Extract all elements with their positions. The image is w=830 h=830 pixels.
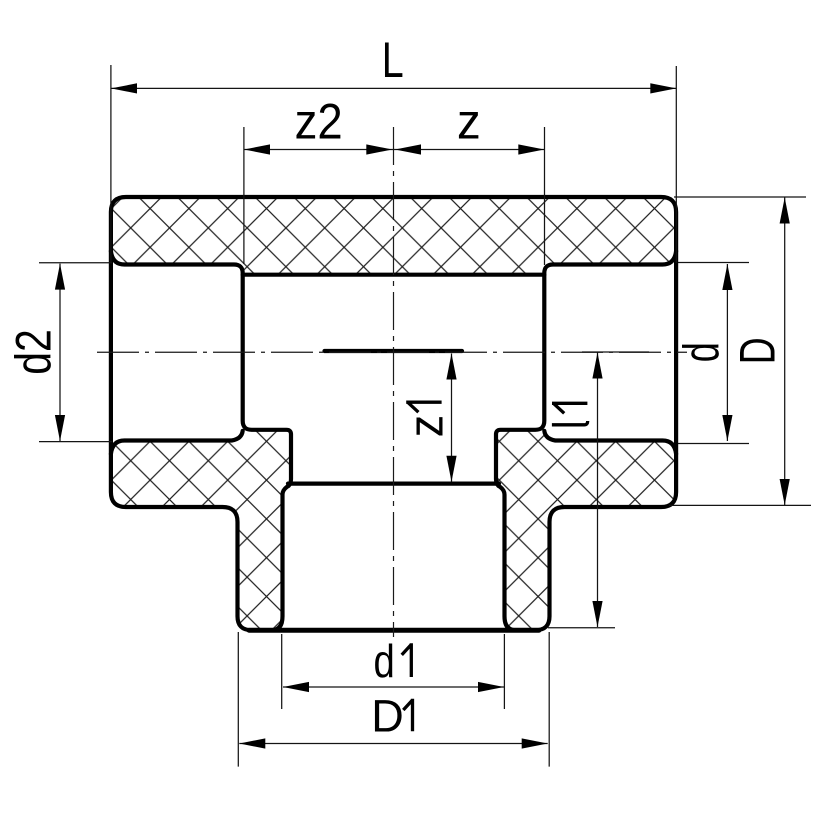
svg-text:z: z bbox=[398, 415, 453, 438]
svg-text:L: L bbox=[382, 31, 404, 88]
svg-text:D: D bbox=[371, 690, 404, 741]
svg-text:z2: z2 bbox=[295, 95, 343, 150]
svg-text:d2: d2 bbox=[6, 329, 62, 375]
svg-text:z: z bbox=[457, 95, 481, 150]
svg-text:D: D bbox=[730, 337, 786, 364]
svg-text:d: d bbox=[374, 636, 395, 688]
svg-text:d: d bbox=[675, 342, 730, 362]
